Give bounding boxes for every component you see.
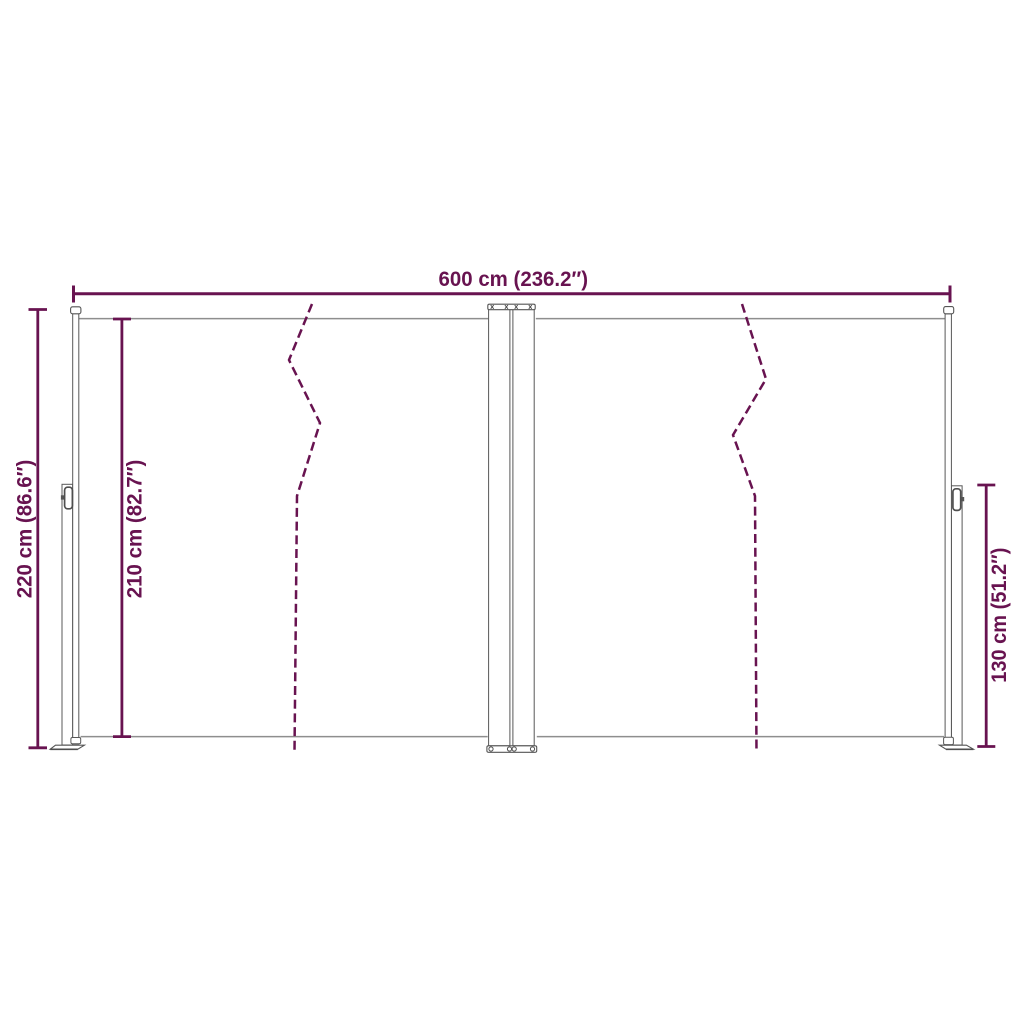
- svg-text:130 cm (51.2″): 130 cm (51.2″): [988, 548, 1011, 683]
- svg-text:210 cm (82.7″): 210 cm (82.7″): [124, 460, 147, 599]
- svg-text:600 cm (236.2″): 600 cm (236.2″): [439, 268, 589, 291]
- svg-text:220 cm (86.6″): 220 cm (86.6″): [13, 460, 36, 599]
